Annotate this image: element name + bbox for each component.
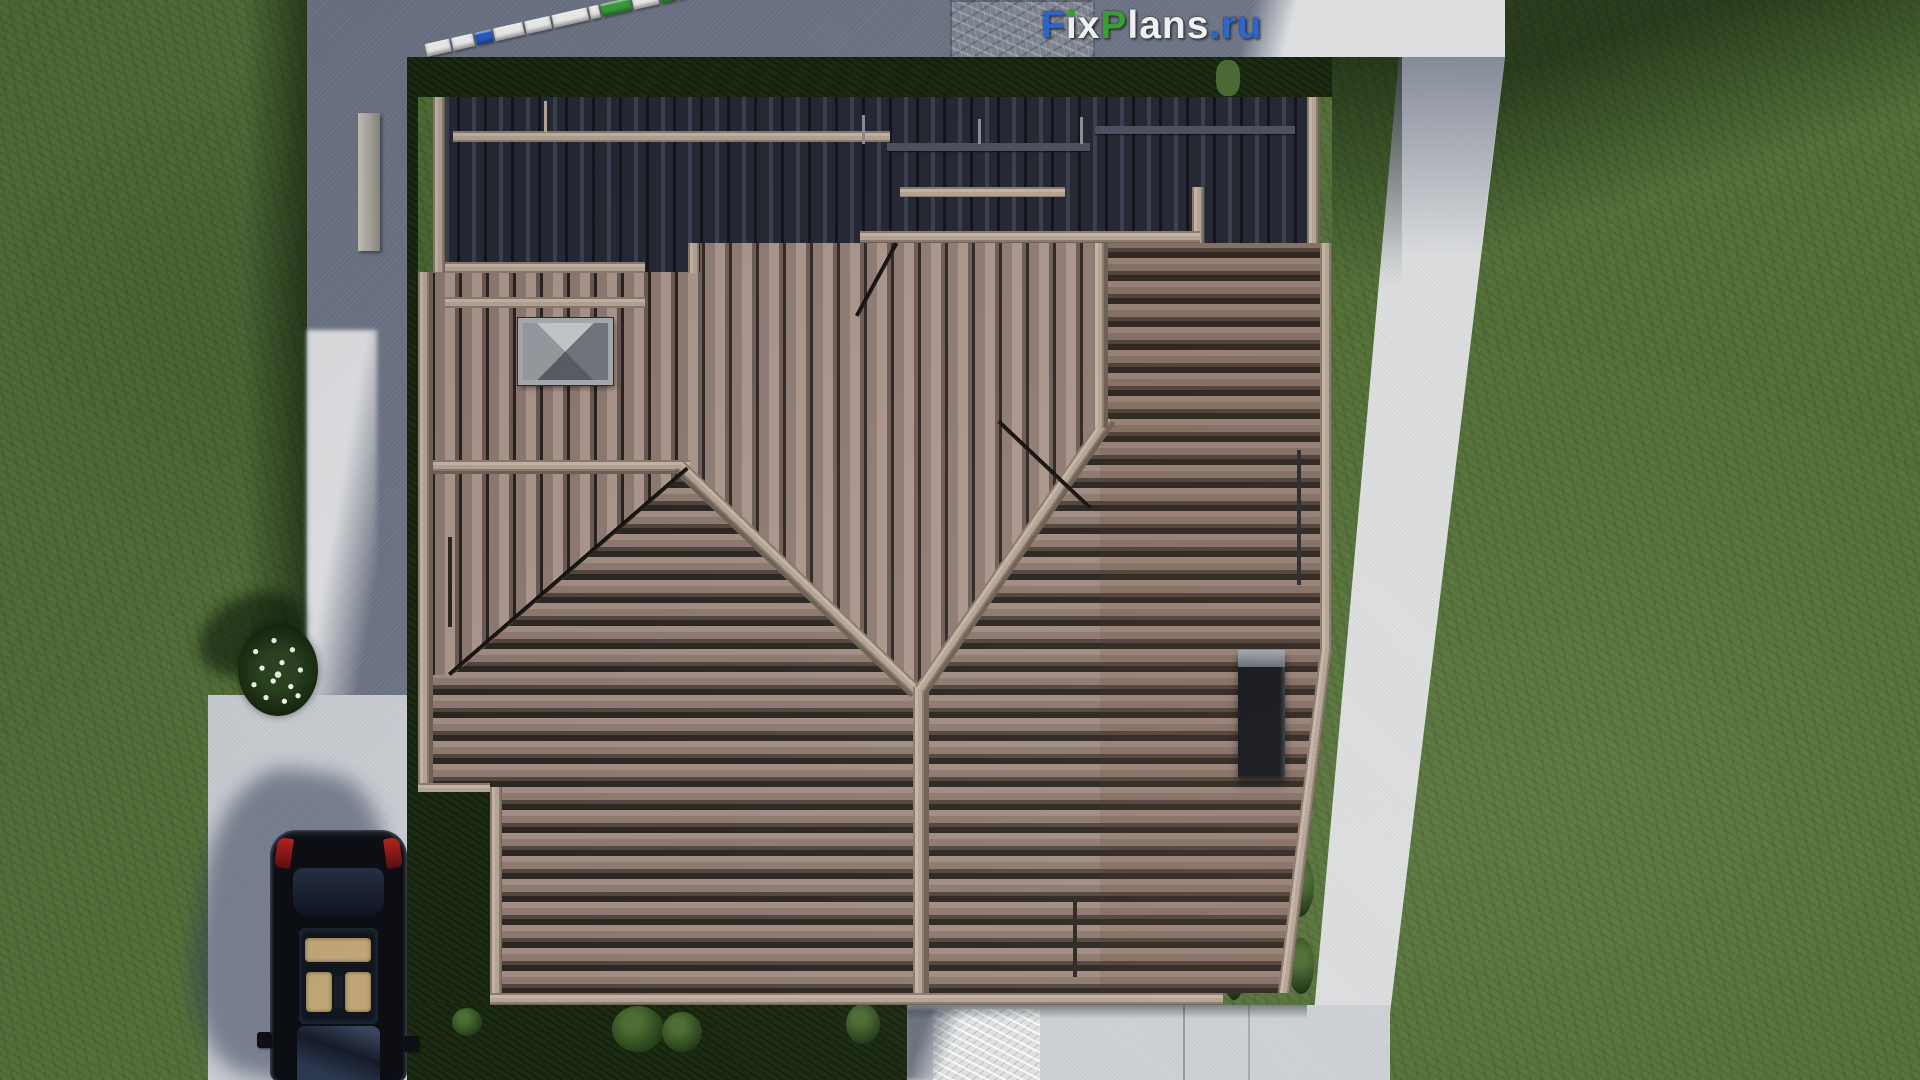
eave-trim-dark-east [1307, 97, 1320, 243]
ridge-bar [453, 131, 890, 142]
snow-rail [1095, 126, 1295, 134]
ridge-bar [900, 187, 1065, 197]
vent-pipe [1080, 117, 1083, 144]
vent-pipe [862, 115, 865, 144]
snow-stick [1073, 897, 1077, 977]
side-mirror-left [257, 1032, 272, 1048]
center-console [334, 976, 343, 1008]
logo-i-dot [1068, 9, 1075, 16]
shrub [662, 1012, 702, 1052]
vent-pipe [978, 119, 981, 144]
ridge-vertical-south [913, 687, 929, 1005]
scale-bar-segment [588, 5, 601, 20]
flower-bush [238, 624, 318, 716]
eave-step-vertical [490, 787, 502, 1005]
rear-seat-bench [305, 938, 371, 962]
skylight-hatch [518, 318, 613, 385]
main-ridge-left [431, 460, 690, 474]
terrace [907, 1005, 1390, 1080]
eave-band-central [860, 231, 1200, 243]
vent-pipe [544, 101, 547, 132]
grass-shadow-band [244, 0, 308, 700]
chimney [1238, 650, 1285, 778]
logo-letter: ru [1221, 4, 1262, 47]
eave-step-horizontal [418, 783, 490, 793]
logo-letter: lans [1127, 4, 1209, 47]
snow-rail [887, 143, 1090, 151]
snow-bar-left-wing [445, 297, 645, 308]
windshield [297, 1026, 380, 1080]
logo-letter: F [1041, 4, 1066, 47]
watermark-logo: FıxPlans.ru [1041, 4, 1262, 48]
chimney-cap [1238, 650, 1285, 667]
shrub [846, 1004, 880, 1044]
shadow-strip-top [407, 57, 1332, 97]
eave-west-upper [433, 97, 445, 272]
ridge-vertical-upper-right [1093, 243, 1108, 428]
aerial-render-scene: FıxPlans.ru [0, 0, 1920, 1080]
eave-band-left-section [418, 262, 645, 273]
gutter-pipe [1297, 450, 1301, 585]
garden-wall-block [358, 113, 380, 251]
shrub [612, 1006, 664, 1052]
snow-stick [448, 537, 452, 627]
side-mirror-right [404, 1036, 419, 1052]
shrub [452, 1008, 482, 1036]
eave-west [418, 272, 433, 792]
logo-letter: . [1209, 4, 1221, 47]
logo-letter: ı [1066, 4, 1078, 48]
rear-window [293, 868, 384, 916]
eave-east [1320, 243, 1332, 650]
logo-letter: x [1078, 4, 1101, 47]
eave-south [490, 993, 1223, 1005]
lit-grass-gap [1216, 60, 1240, 96]
front-seat-right [345, 972, 371, 1012]
walkway-top [307, 0, 1505, 57]
eave-step-connector [688, 243, 699, 273]
logo-letter: P [1100, 4, 1127, 47]
grass-shadow-wedge [1440, 0, 1920, 360]
front-seat-left [306, 972, 332, 1012]
house-roof [418, 97, 1332, 1005]
walkway-left [307, 0, 407, 697]
